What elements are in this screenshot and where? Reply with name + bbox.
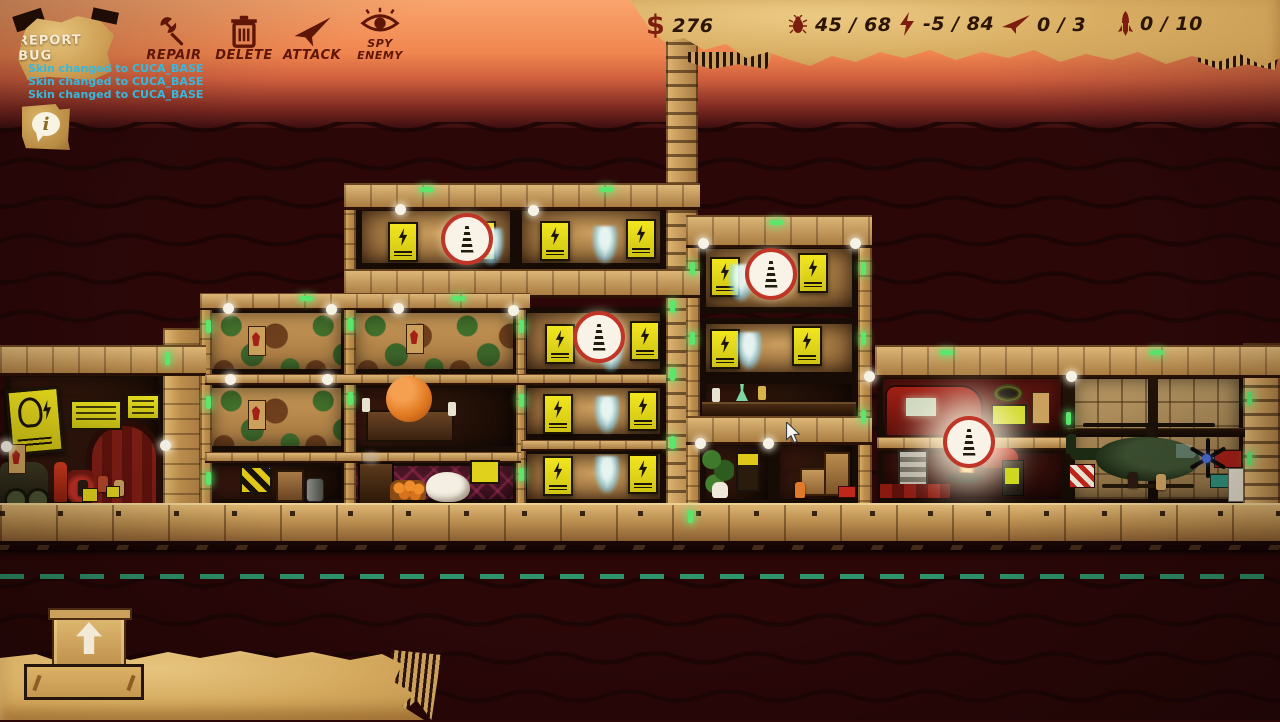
console-screen xyxy=(906,398,936,416)
resource-power: -5 / 84 xyxy=(898,12,994,36)
red-mat xyxy=(880,484,950,498)
status-light xyxy=(206,472,211,485)
electric-sign xyxy=(798,253,828,293)
dollar-icon: $ xyxy=(646,12,665,39)
status-light xyxy=(348,392,353,405)
helicopter-skids xyxy=(1102,484,1194,488)
attack-button[interactable]: ATTACK xyxy=(276,0,348,62)
yellow-crate xyxy=(106,486,120,498)
floor-strip xyxy=(205,374,666,385)
bug-poster xyxy=(248,400,266,430)
helicopter-tailfin xyxy=(1066,434,1076,454)
room-camo-storage[interactable] xyxy=(349,307,519,375)
banner-slash xyxy=(126,675,135,691)
banner-slash xyxy=(32,675,41,691)
character xyxy=(795,482,805,498)
status-light xyxy=(519,394,524,407)
status-light xyxy=(940,350,953,355)
status-light xyxy=(206,320,211,333)
striped-barrier xyxy=(1069,464,1095,488)
power-value: -5 / 84 xyxy=(923,13,994,35)
bug-poster xyxy=(406,324,424,354)
giant-orange xyxy=(386,376,432,422)
repair-button[interactable]: REPAIR xyxy=(138,0,210,62)
build-marker-badge[interactable] xyxy=(943,416,995,468)
red-toolbox xyxy=(838,486,856,498)
status-light xyxy=(1247,452,1252,465)
build-marker-badge[interactable] xyxy=(745,248,797,300)
electric-sign xyxy=(388,222,418,262)
attack-label: ATTACK xyxy=(283,50,341,62)
status-light xyxy=(452,296,465,301)
build-node[interactable] xyxy=(326,304,337,315)
bottle-label xyxy=(1005,468,1019,484)
paper-plane-icon xyxy=(292,15,332,49)
status-light xyxy=(1066,412,1071,425)
vending-machine xyxy=(736,452,760,492)
build-node[interactable] xyxy=(223,303,234,314)
status-panel xyxy=(991,404,1027,426)
roof-beam xyxy=(0,345,206,376)
status-light xyxy=(348,318,353,331)
fire-hydrant xyxy=(54,462,67,502)
status-light xyxy=(861,410,866,423)
scope-display xyxy=(993,384,1023,403)
sheep xyxy=(426,472,470,502)
electric-sign xyxy=(540,221,570,261)
status-light xyxy=(600,187,613,192)
delete-label: DELETE xyxy=(215,50,273,62)
bottle xyxy=(712,388,720,402)
stove xyxy=(358,462,394,506)
console-message: Skin changed to CUCA_BASE xyxy=(28,62,203,75)
smoke-puff xyxy=(362,452,380,464)
console-message: Skin changed to CUCA_BASE xyxy=(28,75,203,88)
rocket-icon xyxy=(1118,11,1133,36)
build-node[interactable] xyxy=(225,374,236,385)
resource-population: 45 / 68 xyxy=(788,14,892,36)
status-light xyxy=(420,187,433,192)
status-light xyxy=(206,396,211,409)
delete-button[interactable]: DELETE xyxy=(208,0,280,62)
lightning-icon xyxy=(898,12,916,36)
build-node[interactable] xyxy=(864,371,875,382)
build-node[interactable] xyxy=(850,238,861,249)
status-light xyxy=(519,468,524,481)
menu-sign xyxy=(470,460,500,484)
electric-sign xyxy=(630,321,660,361)
repair-label: REPAIR xyxy=(146,50,201,62)
eye-icon xyxy=(359,7,401,37)
status-light xyxy=(165,352,170,365)
status-light xyxy=(519,320,524,333)
character xyxy=(1128,472,1138,488)
room-camo-storage[interactable] xyxy=(205,307,347,375)
status-light xyxy=(690,262,695,275)
build-marker-badge[interactable] xyxy=(441,213,493,265)
resource-planes: 0 / 3 xyxy=(1002,14,1086,36)
status-light xyxy=(861,262,866,275)
status-light xyxy=(688,510,693,523)
lab-counter xyxy=(702,402,856,416)
report-bug-label: REPORT BUG xyxy=(18,32,115,64)
electric-sign xyxy=(545,324,575,364)
electric-sign xyxy=(710,257,740,297)
toilet xyxy=(712,482,728,498)
notice-plaque xyxy=(126,394,160,420)
status-light xyxy=(670,368,675,381)
build-node[interactable] xyxy=(395,204,406,215)
status-light xyxy=(861,332,866,345)
build-node[interactable] xyxy=(508,305,519,316)
spy-enemy-button[interactable]: SPYENEMY xyxy=(344,0,416,62)
paper-plane-icon xyxy=(1002,15,1030,35)
build-node[interactable] xyxy=(160,440,171,451)
info-button[interactable]: i xyxy=(22,104,70,150)
trash-icon xyxy=(229,15,259,49)
status-light xyxy=(670,300,675,313)
barrel xyxy=(306,478,324,502)
bottle xyxy=(758,386,766,400)
electric-sign xyxy=(792,326,822,366)
console-message: Skin changed to CUCA_BASE xyxy=(28,88,203,101)
console-message-log: Skin changed to CUCA_BASE Skin changed t… xyxy=(28,62,203,101)
build-marker-badge[interactable] xyxy=(573,311,625,363)
build-node[interactable] xyxy=(528,205,539,216)
wall-poster xyxy=(1032,392,1050,424)
rockets-value: 0 / 10 xyxy=(1140,13,1203,35)
electric-sign xyxy=(543,456,573,496)
resource-rockets: 0 / 10 xyxy=(1118,11,1203,36)
status-light xyxy=(670,436,675,449)
crate xyxy=(276,470,304,502)
wrench-icon xyxy=(156,15,192,49)
build-node[interactable] xyxy=(1,441,12,452)
electric-sign xyxy=(710,329,740,369)
build-node[interactable] xyxy=(698,238,709,249)
caution-machine xyxy=(240,466,272,494)
electric-sign xyxy=(628,391,658,431)
population-value: 45 / 68 xyxy=(815,14,892,36)
roof-beam xyxy=(875,345,1280,378)
tower-column-left xyxy=(686,215,700,505)
build-node[interactable] xyxy=(695,438,706,449)
build-node[interactable] xyxy=(1066,371,1077,382)
propeller-hub xyxy=(1202,454,1211,463)
status-light xyxy=(1247,392,1252,405)
electric-sign xyxy=(628,454,658,494)
helicopter-rotor xyxy=(1083,423,1215,427)
game-viewport: REPORT BUG Skin changed to CUCA_BASE Ski… xyxy=(0,0,1280,720)
status-light xyxy=(690,332,695,345)
status-light xyxy=(300,296,313,301)
up-arrow-icon xyxy=(76,622,102,654)
planes-value: 0 / 3 xyxy=(1037,14,1086,36)
yellow-crate xyxy=(82,488,98,502)
bottle xyxy=(448,402,456,416)
underground-dashed-line xyxy=(0,574,1280,579)
room-camo-storage[interactable] xyxy=(205,382,347,452)
info-bubble-icon: i xyxy=(32,112,60,136)
base-platform xyxy=(0,503,1280,545)
build-node[interactable] xyxy=(322,374,333,385)
money-value: 276 xyxy=(672,15,713,37)
build-node[interactable] xyxy=(393,303,404,314)
bottle xyxy=(362,398,370,412)
build-node[interactable] xyxy=(763,438,774,449)
selection-banner[interactable] xyxy=(24,664,144,700)
status-light xyxy=(1150,350,1163,355)
character xyxy=(1156,474,1166,490)
status-light xyxy=(770,220,783,225)
orange-pile xyxy=(390,480,426,500)
spy-enemy-label: SPYENEMY xyxy=(357,38,403,62)
bug-icon xyxy=(788,15,808,35)
roof-beam xyxy=(200,293,530,310)
box-flap xyxy=(48,608,132,620)
floor-strip xyxy=(521,440,666,451)
resource-money: $ 276 xyxy=(646,12,713,39)
electric-sign xyxy=(543,394,573,434)
bug-poster xyxy=(248,326,266,356)
turbine-fan xyxy=(946,472,984,484)
tower-column-right xyxy=(858,215,872,505)
electric-sign xyxy=(626,219,656,259)
white-door xyxy=(1228,468,1244,502)
tower-floor-beam xyxy=(686,416,872,445)
notice-plaque xyxy=(70,400,122,430)
